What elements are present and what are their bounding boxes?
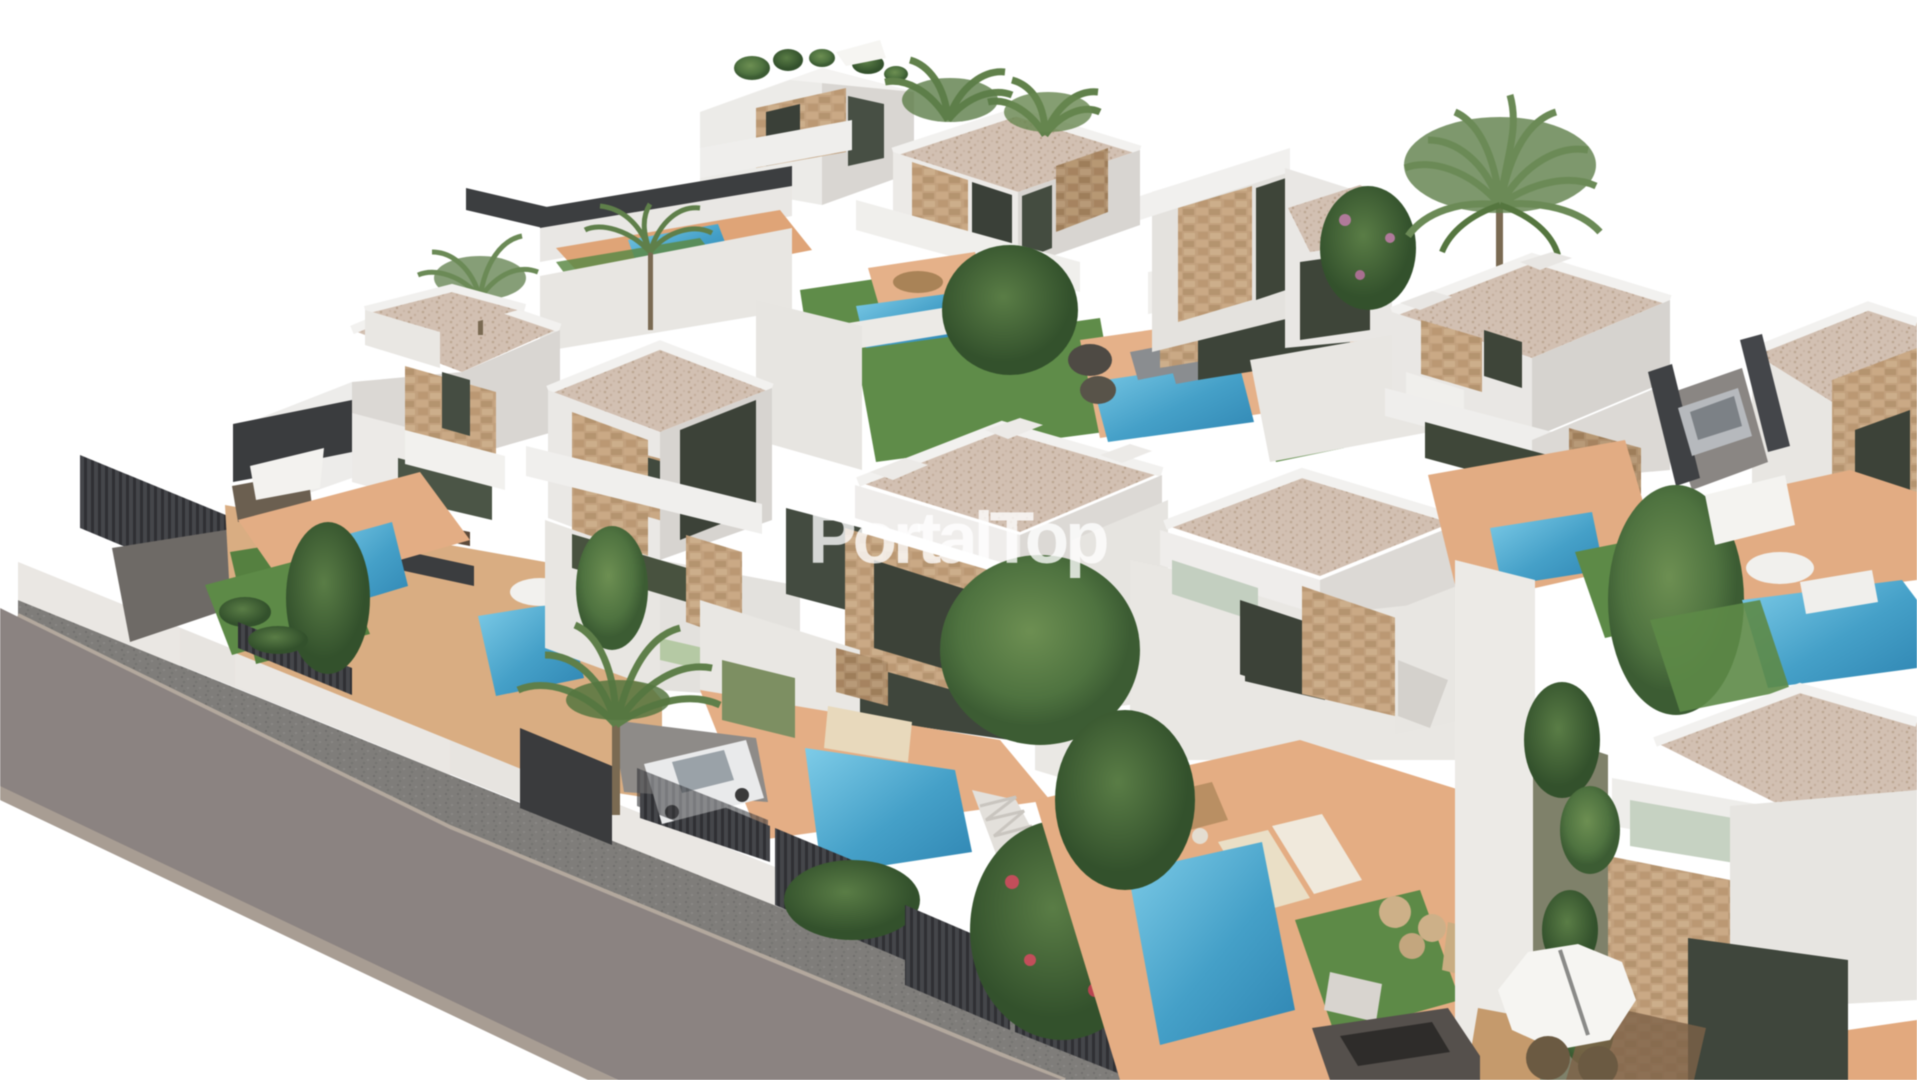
svg-text:PortalTop: PortalTop (808, 498, 1107, 579)
